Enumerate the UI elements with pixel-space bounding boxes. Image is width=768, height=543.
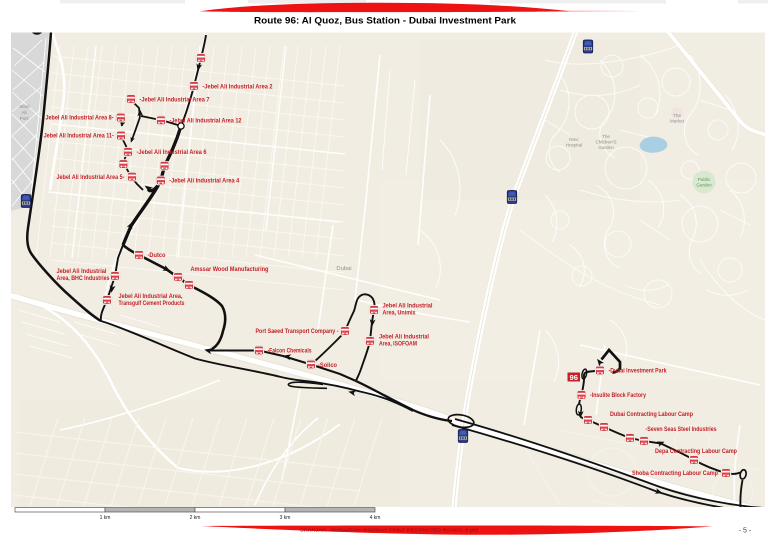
svg-text:-Dubai Investment Park: -Dubai Investment Park	[609, 369, 668, 375]
svg-text:Shoba Contracting Labour Camp: Shoba Contracting Labour Camp	[632, 471, 718, 477]
svg-text:Port Saeed Transport Company -: Port Saeed Transport Company -	[256, 329, 339, 335]
svg-text:-Jebel Ali Industrial Area 7: -Jebel Ali Industrial Area 7	[140, 97, 211, 103]
svg-text:96: 96	[569, 373, 577, 382]
svg-text:Jebel Ali Industrial Area,Tran: Jebel Ali Industrial Area,Transgulf Ceme…	[119, 294, 186, 307]
svg-text:PublicGarden: PublicGarden	[696, 177, 712, 188]
svg-text:Amssar Wood Manufacturing: Amssar Wood Manufacturing	[191, 267, 269, 273]
svg-text:-Dutco: -Dutco	[148, 253, 166, 259]
svg-text:SHARJAH - MUSAFFAH HIGHWAY PR: SHARJAH - MUSAFFAH HIGHWAY PRINT RESTRIC…	[300, 528, 479, 533]
svg-text:4 km: 4 km	[370, 515, 381, 521]
svg-text:Port: Port	[20, 116, 29, 121]
svg-text:-Jebel Ali Industrial Area 4: -Jebel Ali Industrial Area 4	[169, 179, 240, 185]
svg-text:Depa Contracting Labour Camp: Depa Contracting Labour Camp	[655, 449, 737, 455]
svg-text:-Jebel Ali Industrial Area 6: -Jebel Ali Industrial Area 6	[137, 150, 208, 156]
svg-text:Jebel Ali Industrial Area 5-: Jebel Ali Industrial Area 5-	[57, 175, 125, 181]
svg-text:3 km: 3 km	[280, 515, 291, 521]
svg-text:-Solico: -Solico	[318, 363, 337, 369]
svg-text:Dubai Contracting Labour Camp: Dubai Contracting Labour Camp	[610, 412, 693, 418]
svg-text:Ali: Ali	[21, 110, 26, 115]
svg-text:2 km: 2 km	[190, 515, 201, 521]
svg-text:Route 96: Al Quoz, Bus Station: Route 96: Al Quoz, Bus Station - Dubai I…	[254, 16, 517, 27]
svg-text:-Falcon Chemicals: -Falcon Chemicals	[268, 349, 313, 355]
svg-text:- 5 -: - 5 -	[739, 528, 752, 535]
svg-text:-Seven Seas Steel Industries: -Seven Seas Steel Industries	[646, 427, 718, 433]
svg-text:Jebel Ali IndustrialArea, BHC: Jebel Ali IndustrialArea, BHC Industries	[57, 269, 111, 282]
svg-text:-Jebel Ali Industrial Area 2: -Jebel Ali Industrial Area 2	[203, 84, 274, 90]
svg-text:-Jebel Ali Industrial Area 12: -Jebel Ali Industrial Area 12	[170, 118, 243, 124]
svg-text:Jebel: Jebel	[19, 104, 30, 109]
svg-text:Jebel Ali Industrial Area 8-: Jebel Ali Industrial Area 8-	[46, 116, 114, 122]
svg-text:-Insulite Block Factory: -Insulite Block Factory	[590, 393, 647, 399]
svg-text:Jebel Ali Industrial Area 11-: Jebel Ali Industrial Area 11-	[44, 134, 114, 140]
svg-text:Dubai: Dubai	[336, 266, 351, 272]
svg-text:1 km: 1 km	[100, 515, 111, 521]
